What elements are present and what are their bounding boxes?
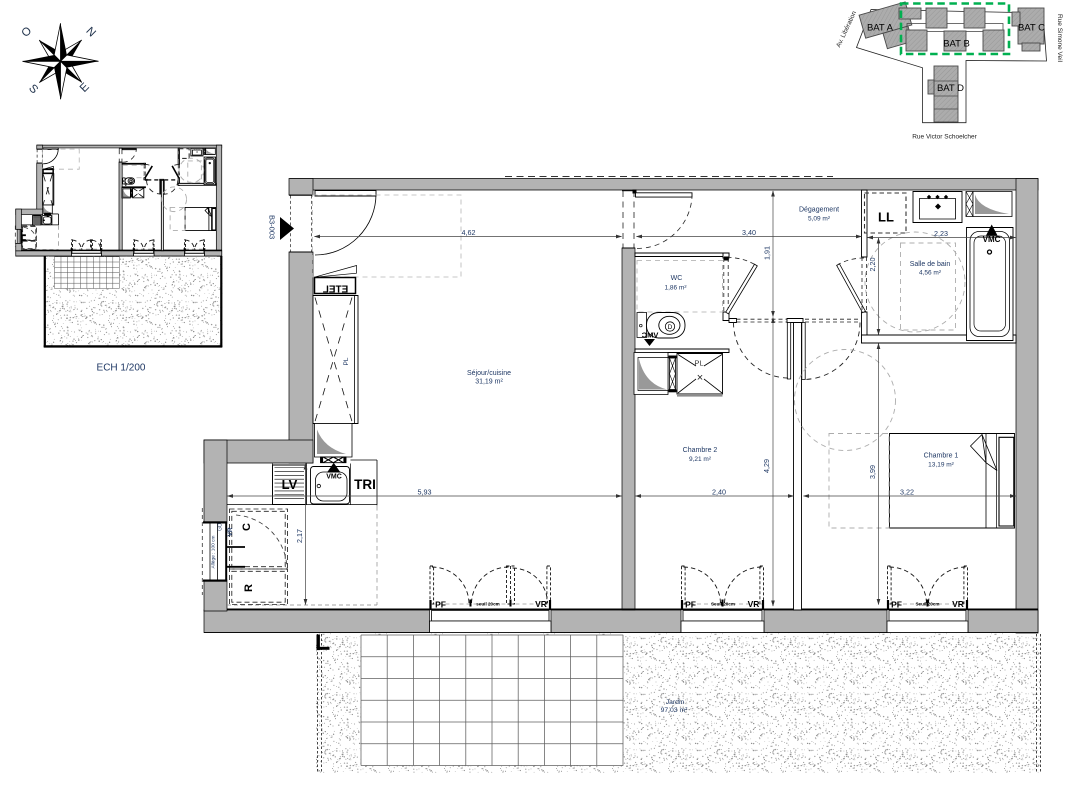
- svg-text:D: D: [668, 324, 673, 331]
- svg-text:VR: VR: [535, 599, 547, 609]
- svg-text:Rue Simone Veil: Rue Simone Veil: [1056, 14, 1063, 63]
- svg-text:GO: GO: [218, 523, 224, 531]
- svg-text:Allège : 100 cm: Allège : 100 cm: [211, 535, 217, 568]
- svg-text:S: S: [26, 82, 40, 96]
- svg-text:2,40: 2,40: [712, 487, 726, 496]
- svg-text:4,29: 4,29: [762, 459, 771, 473]
- svg-text:31,19 m²: 31,19 m²: [475, 379, 503, 386]
- svg-text:VR: VR: [227, 527, 234, 536]
- svg-text:seuil 20cm: seuil 20cm: [476, 602, 500, 607]
- svg-text:VMC: VMC: [326, 474, 342, 481]
- svg-text:1,91: 1,91: [763, 246, 772, 260]
- svg-text:3,99: 3,99: [868, 465, 877, 479]
- svg-text:Chambre 2: Chambre 2: [683, 447, 718, 454]
- svg-text:R: R: [243, 584, 255, 592]
- svg-text:VR: VR: [952, 599, 964, 609]
- svg-text:ECH 1/200: ECH 1/200: [97, 363, 146, 374]
- svg-text:97,03 m²: 97,03 m²: [661, 707, 689, 714]
- svg-text:VMC: VMC: [983, 235, 1001, 244]
- svg-text:BAT A: BAT A: [867, 23, 894, 34]
- svg-text:C: C: [241, 523, 253, 531]
- svg-text:O: O: [19, 25, 34, 40]
- svg-text:BAT B: BAT B: [943, 39, 970, 50]
- svg-text:Rue Victor Schoelcher: Rue Victor Schoelcher: [912, 134, 977, 141]
- svg-text:TRI: TRI: [354, 477, 376, 492]
- svg-text:Jardin: Jardin: [666, 699, 685, 706]
- svg-text:VMC: VMC: [641, 331, 658, 340]
- svg-text:WC: WC: [671, 275, 683, 282]
- svg-text:5,93: 5,93: [418, 487, 432, 496]
- svg-text:PF: PF: [891, 600, 902, 610]
- svg-text:Seuil 20cm: Seuil 20cm: [711, 602, 735, 607]
- svg-text:ETEL: ETEL: [323, 285, 349, 296]
- svg-text:3,22: 3,22: [900, 487, 914, 496]
- svg-text:Chambre 1: Chambre 1: [924, 453, 959, 460]
- svg-text:1,86 m²: 1,86 m²: [664, 285, 687, 292]
- svg-text:N: N: [83, 25, 97, 39]
- svg-text:PL: PL: [343, 357, 350, 365]
- svg-text:2,20: 2,20: [868, 258, 877, 272]
- svg-text:3,40: 3,40: [742, 228, 756, 237]
- svg-text:5,09 m²: 5,09 m²: [808, 216, 831, 223]
- svg-text:LL: LL: [878, 210, 894, 225]
- svg-text:LV: LV: [282, 477, 298, 492]
- svg-text:Salle de bain: Salle de bain: [910, 261, 951, 268]
- svg-text:BAT D: BAT D: [937, 83, 964, 94]
- svg-text:Seuil 20cm: Seuil 20cm: [915, 602, 939, 607]
- svg-text:Séjour/cuisine: Séjour/cuisine: [467, 370, 511, 377]
- svg-text:PL: PL: [694, 359, 703, 368]
- svg-text:Av. Libération: Av. Libération: [835, 10, 858, 49]
- svg-text:B3-003: B3-003: [268, 215, 277, 239]
- svg-text:PF: PF: [685, 600, 696, 610]
- svg-text:9,21 m²: 9,21 m²: [689, 456, 712, 463]
- svg-text:2,17: 2,17: [295, 529, 304, 543]
- svg-text:BAT C: BAT C: [1018, 23, 1045, 34]
- svg-text:13,19 m²: 13,19 m²: [928, 462, 954, 469]
- svg-text:4,62: 4,62: [462, 228, 476, 237]
- svg-text:E: E: [78, 81, 92, 95]
- svg-text:VR: VR: [748, 599, 760, 609]
- svg-text:PF: PF: [435, 600, 446, 610]
- svg-text:2,23: 2,23: [934, 229, 948, 238]
- svg-text:Dégagement: Dégagement: [799, 207, 839, 214]
- svg-text:4,56 m²: 4,56 m²: [919, 270, 942, 277]
